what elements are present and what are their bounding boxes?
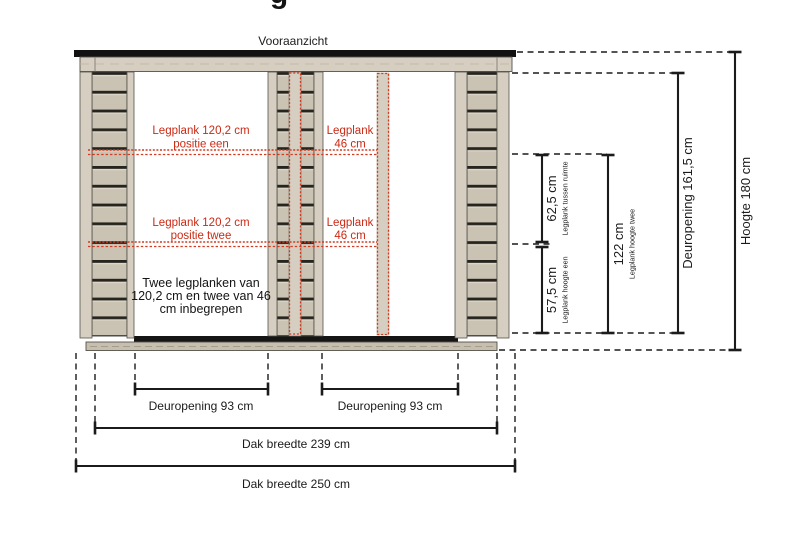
right-wall-inner-post: [455, 72, 467, 338]
dim-label-total-height: Hoogte 180 cm: [738, 157, 753, 245]
dim-label-door-height: Deuropening 161,5 cm: [680, 137, 695, 269]
right-wall-slats: [467, 72, 497, 336]
dim-label-door-width-left: Deuropening 93 cm: [149, 399, 254, 413]
vertical-dimensions: 62,5 cm Legplank tussen ruimte 57,5 cm L…: [536, 52, 754, 350]
shelf1-short-label-line2: 46 cm: [334, 139, 365, 151]
shelf2-short-label-line2: 46 cm: [334, 230, 365, 242]
shelf2-long-label-line2: positie twee: [171, 230, 232, 242]
shelf2-long-label-line1: Legplank 120,2 cm: [152, 217, 249, 229]
dim-label-shelf-gap: 62,5 cm: [544, 175, 559, 221]
cropped-title-fragment: g: [270, 0, 288, 10]
note-line2: 120,2 cm en twee van 46: [131, 289, 271, 303]
horizontal-dimensions: Deuropening 93 cm Deuropening 93 cm Dak …: [76, 383, 515, 492]
shed-front-elevation-diagram: g Vooraanzicht: [0, 0, 798, 535]
view-label: Vooraanzicht: [258, 34, 328, 48]
dim-label-door-width-right: Deuropening 93 cm: [338, 399, 443, 413]
dim-sublabel-shelf-one-height: Legplank hoogte een: [561, 256, 570, 323]
dim-label-shelf-one-height: 57,5 cm: [544, 267, 559, 313]
shelf2-short-label-line1: Legplank: [327, 217, 374, 229]
left-wall-outer-post: [80, 72, 92, 338]
middle-wall-right-post: [314, 72, 323, 336]
left-wall-slats: [92, 72, 127, 336]
middle-wall-panel: [268, 72, 323, 336]
dim-label-roof-width-outer: Dak breedte 250 cm: [242, 477, 350, 491]
dim-label-shelf-two-height: 122 cm: [611, 223, 626, 266]
included-shelves-note: Twee legplanken van 120,2 cm en twee van…: [131, 276, 271, 316]
shed-structure: [74, 50, 516, 351]
note-line1: Twee legplanken van: [142, 276, 259, 290]
note-line3: cm inbegrepen: [160, 302, 243, 316]
dim-sublabel-shelf-gap: Legplank tussen ruimte: [561, 161, 570, 235]
left-wall-panel: [80, 72, 134, 338]
free-shelf-support-post: [377, 73, 389, 335]
shelf1-long-label-line1: Legplank 120,2 cm: [152, 125, 249, 137]
dim-label-roof-width-inner: Dak breedte 239 cm: [242, 437, 350, 451]
shelf1-short-label-line1: Legplank: [327, 125, 374, 137]
middle-shelf-support-post: [289, 72, 301, 336]
shelf1-long-label-line2: positie een: [173, 139, 229, 151]
roof-edge: [74, 50, 516, 57]
right-wall-panel: [455, 72, 509, 338]
right-wall-outer-post: [497, 72, 509, 338]
dim-sublabel-shelf-two-height: Legplank hoogte twee: [628, 209, 637, 279]
technical-drawing-page: g Vooraanzicht: [0, 0, 798, 535]
